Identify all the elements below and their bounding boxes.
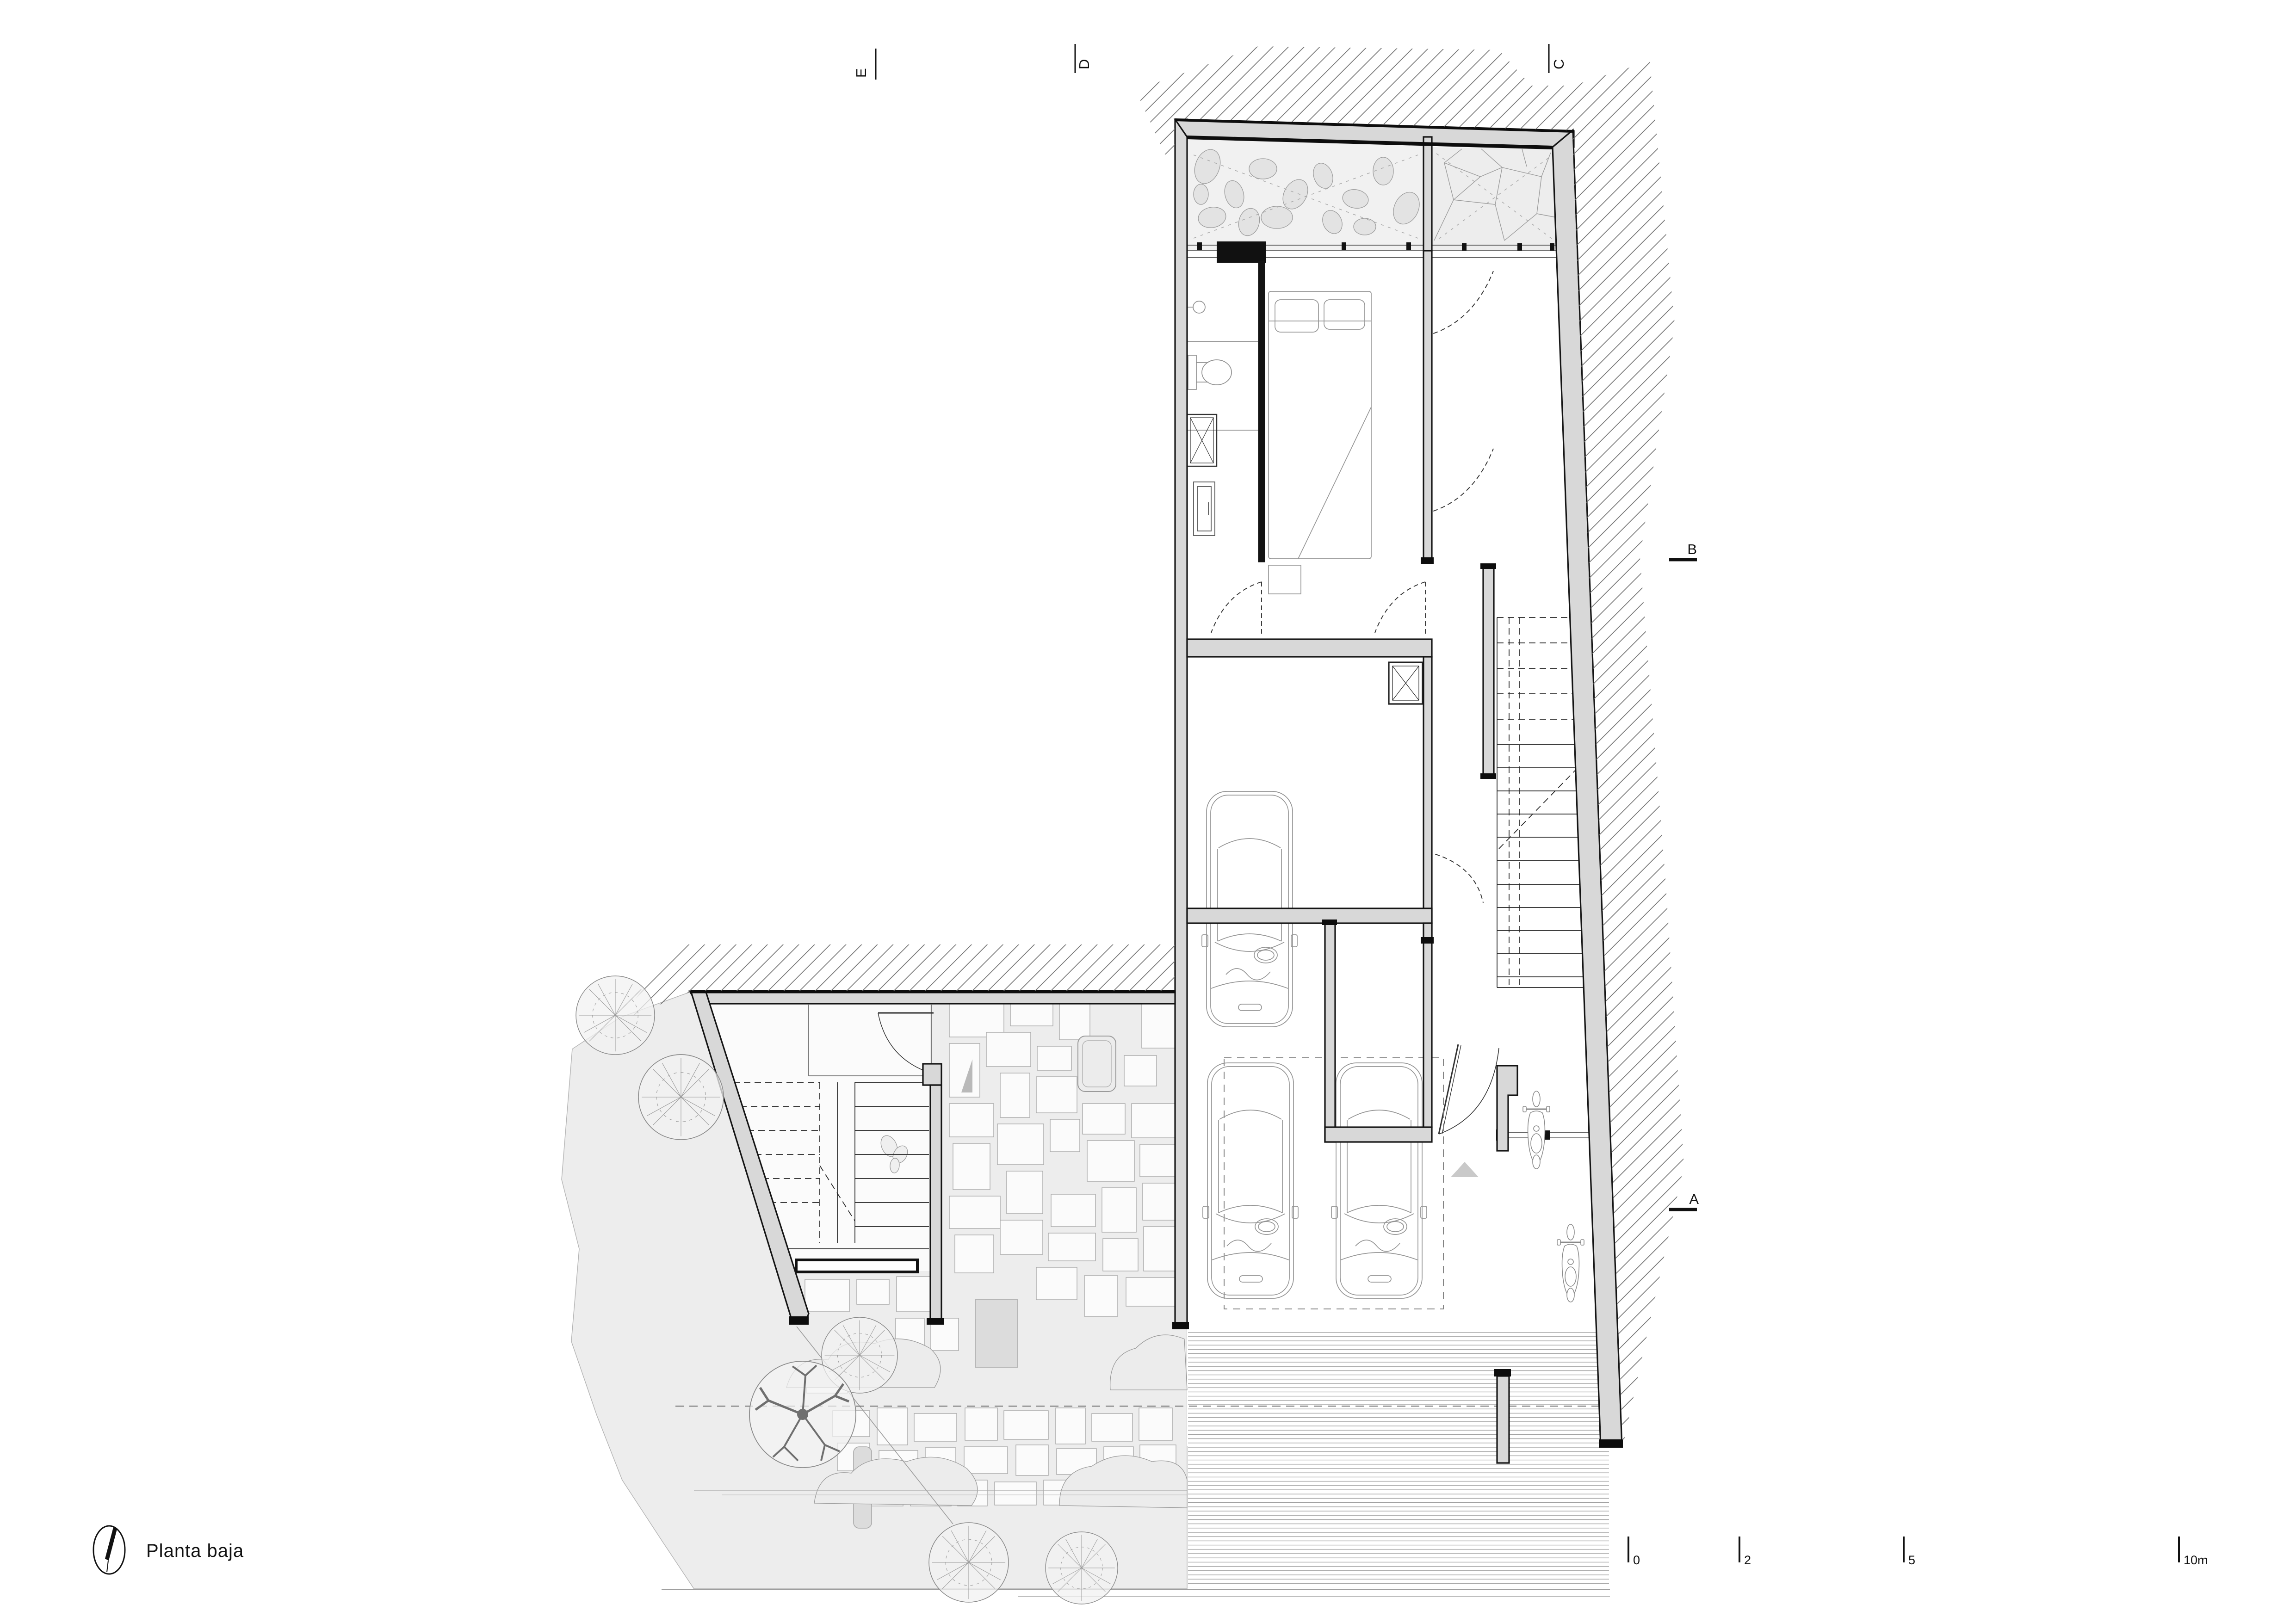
wall-bath-partition — [1259, 262, 1264, 562]
scale-tick-label: 2 — [1744, 1553, 1751, 1567]
wall-storage-right — [1423, 923, 1432, 1127]
scale-bar: 0 2 5 10m — [1628, 1537, 2208, 1567]
scale-tick-label: 10m — [2184, 1553, 2208, 1567]
section-label-c: C — [1551, 59, 1567, 69]
floor-plan-canvas: E D C B A 0 2 5 10m Planta baja — [0, 0, 2296, 1623]
section-label-e: E — [853, 68, 869, 78]
plan-title: Planta baja — [146, 1541, 244, 1561]
section-label-b: B — [1687, 541, 1697, 557]
section-marker-e: E — [853, 49, 876, 80]
section-marker-b: B — [1669, 541, 1697, 560]
window-pier — [1217, 241, 1266, 263]
north-arrow-icon — [93, 1526, 125, 1574]
wall-stub-street — [1497, 1376, 1509, 1463]
section-marker-d: D — [1075, 44, 1092, 73]
wall-midroom-south — [1187, 908, 1432, 923]
tree — [1046, 1532, 1118, 1604]
wall-storage-south — [1325, 1127, 1432, 1142]
wall-midroom-right — [1423, 657, 1432, 941]
tree — [929, 1523, 1009, 1602]
wall-stair-divider — [1483, 567, 1494, 778]
wall-wing-right — [930, 1085, 941, 1322]
scale-tick-label: 5 — [1908, 1553, 1915, 1567]
section-marker-c: C — [1549, 44, 1567, 73]
tree-branching — [749, 1361, 856, 1468]
wall-wing-corner — [923, 1064, 941, 1085]
wall-bedroom-south — [1187, 639, 1432, 657]
scale-tick-label: 0 — [1633, 1553, 1640, 1567]
tree — [638, 1055, 724, 1140]
section-label-a: A — [1689, 1191, 1699, 1207]
wall-storage-left — [1325, 923, 1335, 1142]
wall-tower-left — [1175, 119, 1187, 1327]
stone-basin — [1078, 1036, 1116, 1092]
entry-planter — [796, 1260, 917, 1272]
wall-patio-divider — [1423, 137, 1432, 251]
section-label-d: D — [1076, 59, 1092, 69]
wall-corridor — [1423, 251, 1432, 563]
patio-stone-paving — [1432, 147, 1558, 250]
floor-plan-sheet: E D C B A 0 2 5 10m Planta baja — [0, 0, 2296, 1623]
tree — [576, 976, 655, 1055]
patio-gravel-garden — [1187, 139, 1424, 250]
planter-box — [975, 1300, 1018, 1367]
title-block: Planta baja — [93, 1526, 244, 1574]
